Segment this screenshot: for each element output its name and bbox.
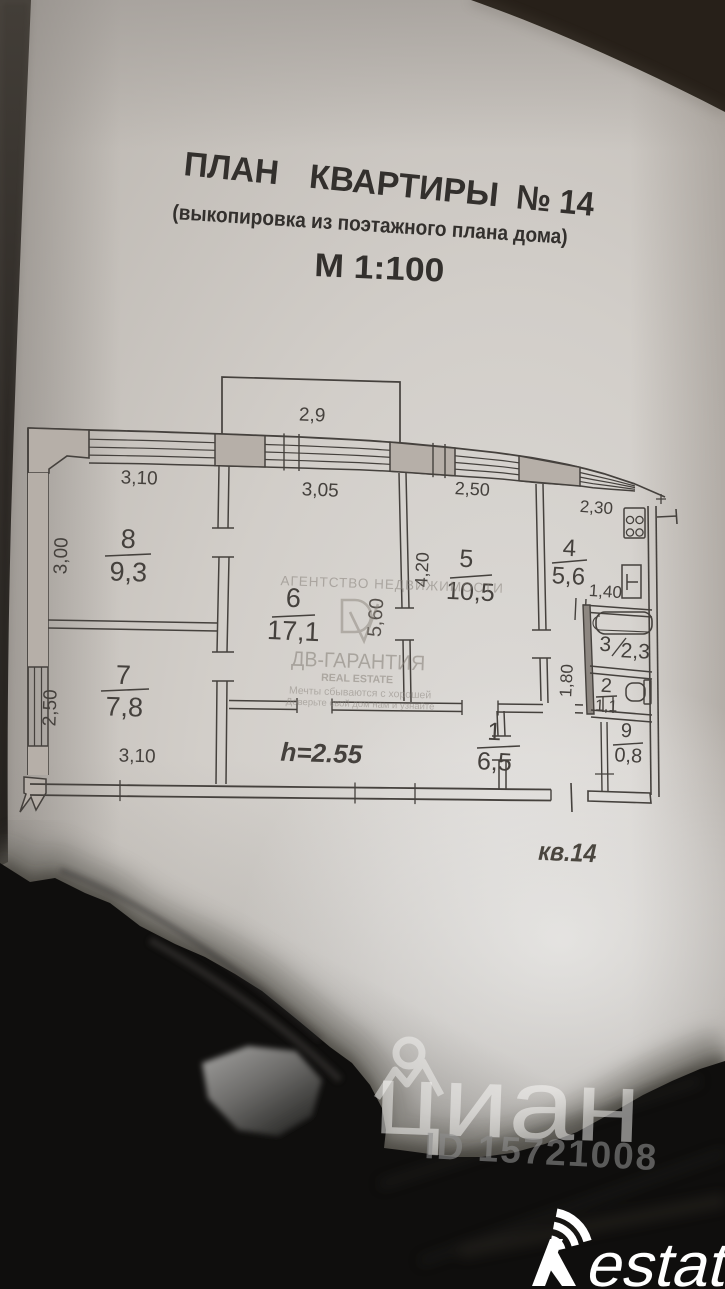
svg-text:1,40: 1,40 bbox=[588, 581, 622, 602]
svg-text:3,10: 3,10 bbox=[120, 467, 158, 489]
svg-text:2,30: 2,30 bbox=[579, 497, 613, 518]
svg-text:0,8: 0,8 bbox=[614, 744, 643, 767]
svg-text:7,8: 7,8 bbox=[105, 691, 144, 722]
svg-text:h=2.55: h=2.55 bbox=[280, 737, 363, 770]
svg-text:3,10: 3,10 bbox=[118, 746, 156, 768]
svg-text:3: 3 bbox=[599, 633, 612, 657]
svg-text:1: 1 bbox=[487, 718, 502, 747]
svg-text:4: 4 bbox=[562, 535, 577, 563]
svg-text:5,6: 5,6 bbox=[551, 562, 586, 591]
svg-text:REAL ESTATE: REAL ESTATE bbox=[321, 672, 393, 687]
svg-text:6,5: 6,5 bbox=[476, 747, 512, 777]
svg-text:2,3: 2,3 bbox=[620, 639, 650, 663]
svg-text:ДВ-ГАРАНТИЯ: ДВ-ГАРАНТИЯ bbox=[291, 648, 426, 676]
svg-text:М 1:100: М 1:100 bbox=[314, 246, 445, 289]
svg-text:8: 8 bbox=[120, 524, 136, 555]
svg-text:1,80: 1,80 bbox=[556, 664, 577, 698]
svg-text:кв.14: кв.14 bbox=[538, 836, 598, 869]
svg-text:2,9: 2,9 bbox=[299, 405, 326, 427]
svg-text:1,1: 1,1 bbox=[595, 697, 618, 715]
svg-text:2,50: 2,50 bbox=[39, 689, 61, 727]
svg-text:3,05: 3,05 bbox=[301, 479, 339, 502]
svg-text:2,50: 2,50 bbox=[454, 478, 490, 500]
svg-text:7: 7 bbox=[115, 660, 131, 691]
svg-text:5: 5 bbox=[459, 545, 474, 574]
svg-text:estate: estate bbox=[581, 1231, 725, 1289]
svg-text:3,00: 3,00 bbox=[50, 537, 72, 575]
svg-text:9,3: 9,3 bbox=[109, 556, 148, 587]
svg-text:2: 2 bbox=[600, 675, 612, 698]
svg-text:9: 9 bbox=[620, 720, 632, 743]
svg-text:17,1: 17,1 bbox=[266, 615, 320, 647]
